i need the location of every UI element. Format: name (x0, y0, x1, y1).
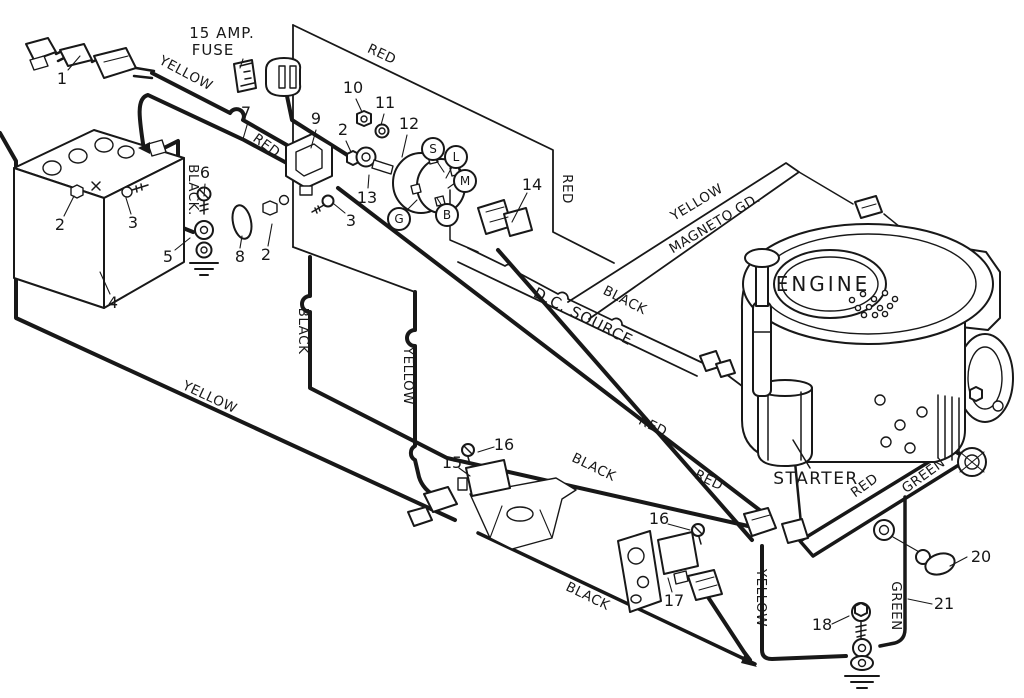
label-black-dcband: BLACK (600, 283, 650, 319)
fuse-holder-slot-1 (279, 66, 285, 88)
fuse-label-line1: 15 AMP. (189, 24, 255, 42)
cable-arrow-tip (741, 653, 757, 667)
dc-inline-connector (700, 351, 735, 377)
screw-item18-hex (855, 603, 867, 616)
callout-17: 17 (664, 591, 684, 610)
callout-2b: 2 (261, 245, 271, 264)
callout-20: 20 (971, 547, 991, 566)
callout-8: 8 (235, 247, 245, 266)
battery-cap-3 (95, 138, 113, 152)
dc-source-band-top (468, 248, 705, 364)
dc-connector-2 (716, 360, 735, 377)
callout-3b: 3 (346, 211, 356, 230)
connector14-body-2 (504, 208, 532, 236)
plate-hole-2 (638, 577, 649, 588)
label-red-vertical: RED (559, 174, 575, 204)
plate-hole-3 (631, 595, 641, 603)
fuse-assembly (234, 58, 300, 96)
battery-terminal-post (118, 146, 134, 158)
bulb-socket-hole (880, 526, 889, 535)
yellow-ground-wire (762, 546, 846, 659)
terminal-label-m: M (460, 174, 470, 188)
callout-12: 12 (399, 114, 419, 133)
ground-symbol-left (190, 263, 218, 275)
plug-body-3 (94, 48, 136, 78)
callout-9: 9 (311, 109, 321, 128)
switch-17-body (658, 532, 698, 574)
callout-13: 13 (357, 188, 377, 207)
label-engine: ENGINE (776, 272, 871, 296)
mid-hardware (230, 196, 289, 241)
battery-cap-2 (69, 149, 87, 163)
fuse-label-line2: FUSE (192, 41, 235, 59)
battery-nut-item2 (71, 185, 83, 198)
label-yellow-vertical: YELLOW (400, 346, 416, 405)
terminal-label-s: S (429, 142, 437, 156)
dipstick-tube (753, 302, 771, 396)
plate-hole-1 (628, 548, 644, 564)
interlock-switch-15 (408, 444, 576, 549)
callout-2c: 2 (338, 120, 348, 139)
wiring-diagram-canvas: S L M G B 1 2 3 4 5 6 7 8 2 9 10 11 2 12… (0, 0, 1024, 698)
callout-21: 21 (934, 594, 954, 613)
battery-cap-1 (43, 161, 61, 175)
engine-bolt-right-2 (993, 401, 1003, 411)
interlock-lug-2 (408, 507, 432, 526)
label-red-paneltop: RED (365, 41, 399, 68)
nut-item2b (263, 201, 277, 215)
label-green-rear: GREEN (888, 581, 904, 631)
spacer-item8 (230, 204, 255, 241)
ground-lug-rear-hole (859, 660, 866, 667)
rear-connector-lug (744, 508, 776, 536)
washer-item18-hole (859, 645, 866, 652)
callout-18: 18 (812, 615, 832, 634)
key-item13-hole (362, 153, 370, 161)
engine (742, 224, 1013, 468)
battery (14, 130, 184, 308)
magneto-connector (855, 196, 882, 218)
label-black-mid1: BLACK (569, 450, 619, 485)
callout-16b: 16 (649, 509, 669, 528)
fuse-holder-slot-2 (290, 66, 296, 88)
stud-item2b (280, 196, 289, 205)
callout-3a: 3 (128, 213, 138, 232)
screw-item3b-shaft (312, 205, 324, 213)
switch-15-tab (458, 478, 467, 490)
washer-hole (201, 247, 207, 253)
callout-10: 10 (343, 78, 363, 97)
switch-terminal-g (411, 184, 421, 194)
label-black-vertical: BLACK (295, 308, 311, 356)
label-starter: STARTER (773, 469, 859, 489)
callout-15: 15 (442, 453, 462, 472)
housing-foot (300, 186, 312, 195)
plug-body-2 (60, 44, 92, 66)
key-item13-blade (372, 160, 393, 174)
nut-item10-hole (361, 116, 367, 122)
starter-lug (782, 519, 808, 543)
magneto-connector-body (855, 196, 882, 218)
screw-item18-shaft (856, 622, 866, 638)
battery-bolt-item3 (122, 187, 132, 197)
callout-4: 4 (108, 293, 118, 312)
plug-connector-assembly (26, 38, 154, 78)
switch-17-tab (674, 571, 688, 584)
terminal-label-g: G (394, 212, 403, 226)
label-red-mid1: RED (636, 413, 670, 440)
dipstick-stem (756, 264, 768, 306)
callout-11: 11 (375, 93, 395, 112)
callout-16a: 16 (494, 435, 514, 454)
terminal-label-l: L (453, 150, 460, 164)
washer-item11-hole (379, 128, 385, 134)
black-lower-wire (478, 533, 755, 664)
dipstick-cap (745, 249, 779, 267)
label-black-battery: BLACK. (185, 164, 201, 216)
wiring-diagram-svg: S L M G B 1 2 3 4 5 6 7 8 2 9 10 11 2 12… (0, 0, 1024, 698)
magneto-lead-wire (799, 172, 906, 232)
callout-2a: 2 (55, 215, 65, 234)
panel-top-right-edge (293, 25, 614, 263)
starter-motor (758, 388, 812, 466)
terminal-label-b: B (443, 208, 451, 222)
key-switch-group (312, 111, 465, 213)
callout-7: 7 (241, 103, 251, 122)
label-yellow-rear: YELLOW (753, 568, 769, 627)
callout-1: 1 (57, 69, 67, 88)
callout-5: 5 (163, 247, 173, 266)
bracket-hole (507, 507, 533, 521)
ground-symbol-rear (845, 676, 879, 688)
ring-lug-hole (201, 227, 208, 234)
engine-bolt-right-1 (970, 387, 982, 401)
callout-14: 14 (522, 175, 542, 194)
